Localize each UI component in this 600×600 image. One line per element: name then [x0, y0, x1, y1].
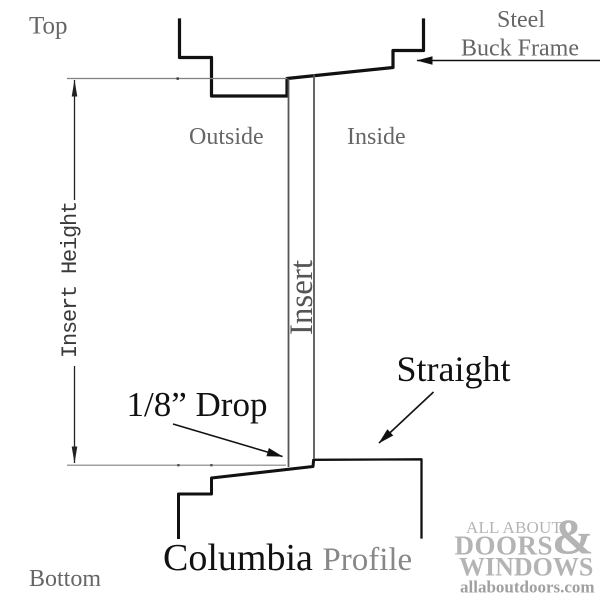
svg-text:1/8” Drop: 1/8” Drop	[127, 385, 268, 424]
svg-text:Straight: Straight	[397, 349, 511, 389]
svg-text:Columbia Profile: Columbia Profile	[163, 537, 412, 579]
svg-text:allaboutdoors.com: allaboutdoors.com	[460, 578, 595, 597]
svg-text:Outside: Outside	[189, 124, 264, 150]
svg-text:Inside: Inside	[347, 124, 406, 150]
svg-text:Bottom: Bottom	[29, 566, 101, 592]
svg-text:Insert Height: Insert Height	[58, 202, 83, 358]
svg-text:Steel: Steel	[497, 7, 545, 33]
svg-text:Top: Top	[29, 13, 68, 40]
svg-text:Buck Frame: Buck Frame	[461, 36, 579, 62]
svg-text:Insert: Insert	[284, 260, 320, 335]
